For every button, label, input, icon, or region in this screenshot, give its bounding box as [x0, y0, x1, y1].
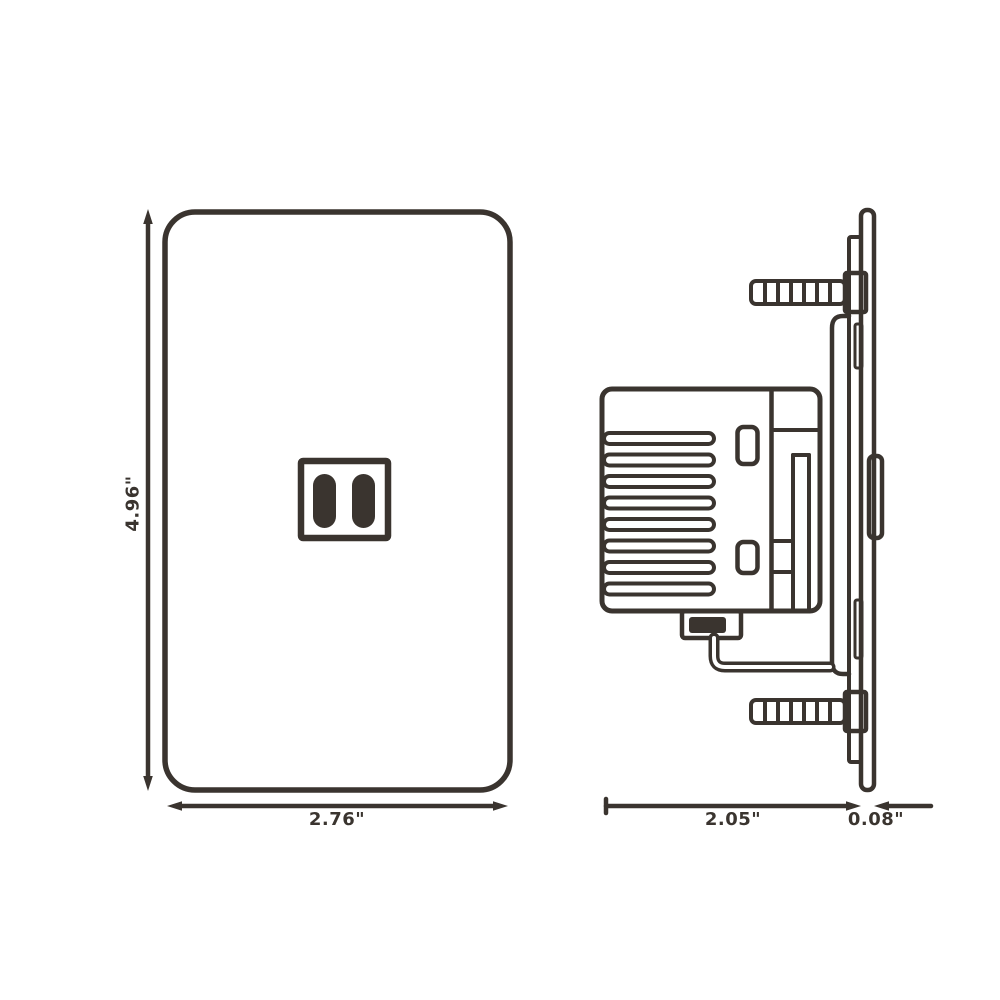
- height-dimension-label: 4.96": [123, 464, 144, 544]
- dimension-drawing: 4.96" 2.76" 2.05" 0.08": [0, 0, 1000, 1000]
- pigtail-wire-outline: [714, 638, 830, 667]
- side-view: [602, 210, 882, 790]
- heatsink: [604, 433, 714, 595]
- thickness-dimension-label: 0.08": [836, 809, 916, 830]
- height-arrow-down: [143, 776, 153, 791]
- slot-right: [352, 474, 375, 528]
- heatsink-fin: [604, 455, 714, 466]
- heatsink-fin: [604, 476, 714, 487]
- strap-slot-bottom: [855, 600, 862, 658]
- wire-clamp-insert: [689, 617, 726, 633]
- heatsink-fin: [604, 562, 714, 573]
- heatsink-fin: [604, 519, 714, 530]
- front-height-dimension: [143, 209, 153, 791]
- body-slot-bottom: [738, 542, 758, 573]
- strap-slot-top: [855, 324, 862, 368]
- yoke-bracket: [832, 316, 849, 674]
- heatsink-fin: [604, 433, 714, 444]
- heatsink-fin: [604, 584, 714, 595]
- front-view: [165, 212, 510, 790]
- wall-plate-front: [165, 212, 510, 790]
- width-arrow-left: [167, 801, 182, 811]
- width-arrow-right: [493, 801, 508, 811]
- width-dimension-label: 2.76": [237, 809, 437, 830]
- drawing-svg: [0, 0, 1000, 1000]
- height-arrow-up: [143, 209, 153, 224]
- heatsink-fin: [604, 541, 714, 552]
- slot-left: [313, 474, 336, 528]
- body-slot-top: [738, 427, 758, 464]
- heatsink-fin: [604, 498, 714, 509]
- depth-dimension-label: 2.05": [633, 809, 833, 830]
